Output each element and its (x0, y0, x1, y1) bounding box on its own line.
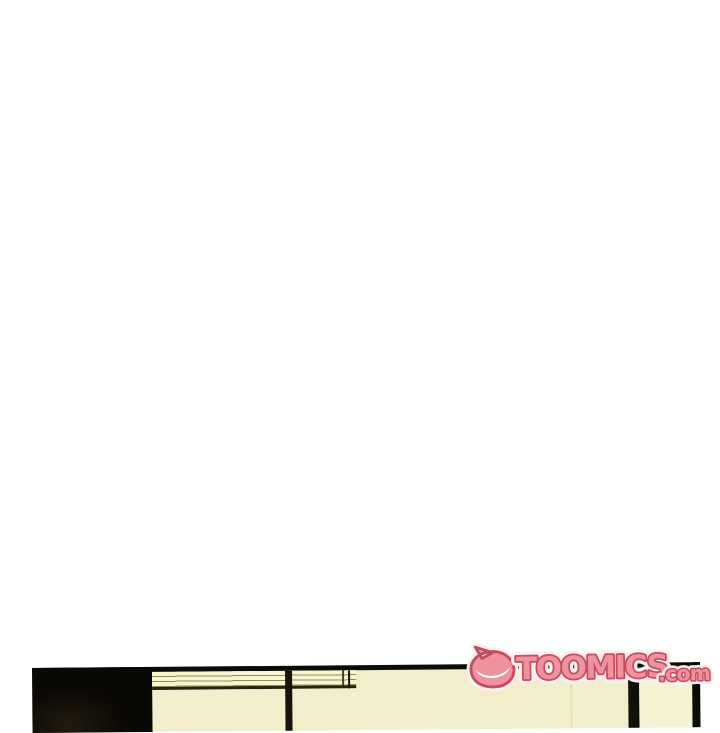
window-blinds (152, 670, 357, 732)
window-sill (152, 685, 356, 690)
window-frame-right-edge (348, 670, 350, 688)
window-frame-divider (285, 671, 293, 731)
blind-slats (152, 670, 356, 687)
comic-panel (32, 662, 701, 733)
panel-right-wall (639, 667, 693, 727)
wall-crease-line (570, 668, 573, 728)
door-frame-bar (628, 668, 640, 728)
window-grid-line (342, 670, 344, 685)
panel-right-border (692, 662, 701, 727)
blank-page-area (0, 0, 720, 660)
webtoon-page: { "page": { "background_color": "#ffffff… (0, 0, 720, 700)
